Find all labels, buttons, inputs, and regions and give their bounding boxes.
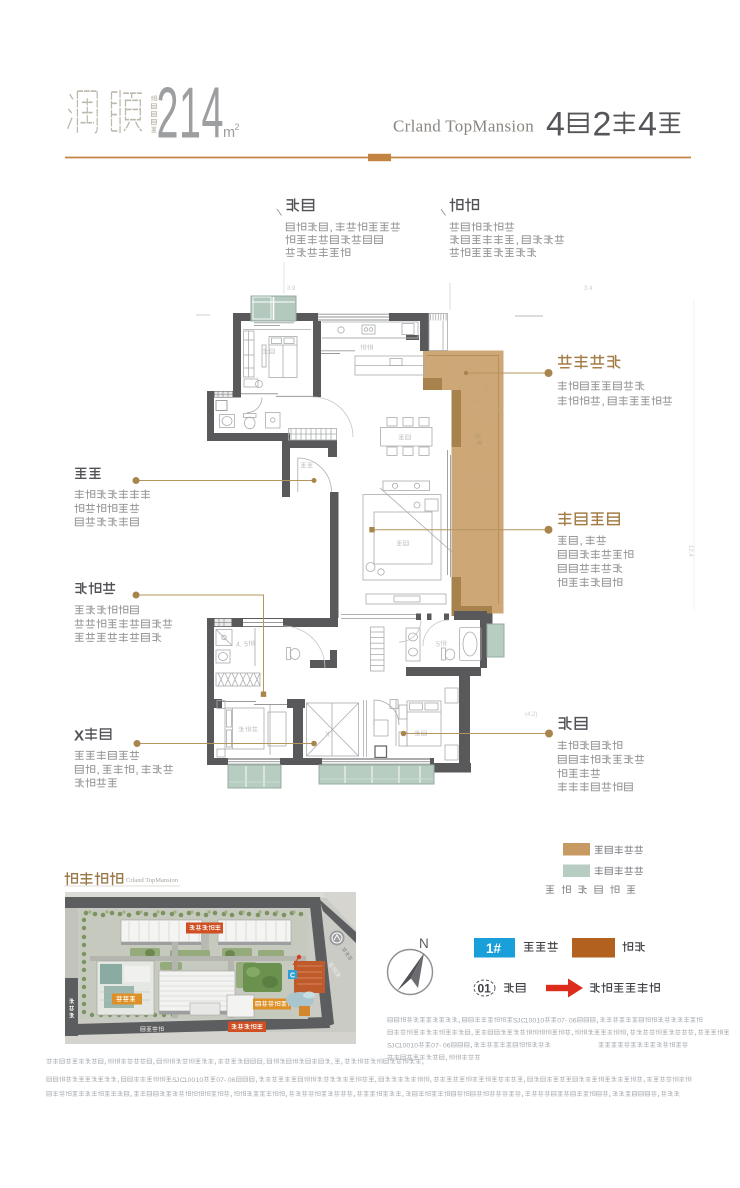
svg-text:214: 214: [157, 73, 225, 154]
svg-text:Crland TopMansion: Crland TopMansion: [393, 117, 534, 136]
svg-text:3.4: 3.4: [584, 286, 593, 292]
svg-text:12.4: 12.4: [687, 545, 693, 557]
svg-text:1#: 1#: [486, 941, 502, 956]
svg-text:X: X: [325, 731, 330, 738]
svg-text:m: m: [223, 125, 235, 141]
svg-text:4: 4: [546, 106, 565, 144]
svg-text:5: 5: [244, 641, 248, 648]
svg-text:2: 2: [593, 106, 612, 144]
svg-text:0: 0: [540, 1018, 544, 1025]
svg-text:6: 6: [232, 1077, 236, 1084]
svg-text:N: N: [419, 936, 429, 951]
svg-text:0: 0: [199, 1077, 203, 1084]
svg-text:Crland TopMansion: Crland TopMansion: [126, 877, 179, 884]
svg-text:6: 6: [573, 1018, 577, 1025]
svg-text:5: 5: [436, 641, 440, 648]
svg-text:2: 2: [235, 122, 240, 132]
svg-text:0: 0: [414, 1043, 418, 1050]
svg-text:C: C: [290, 973, 295, 980]
svg-text:J: J: [391, 1043, 394, 1050]
svg-text:3.9: 3.9: [287, 286, 296, 292]
svg-text:.: .: [240, 641, 242, 648]
svg-text:6: 6: [447, 1043, 451, 1050]
svg-text:(4.2): (4.2): [525, 712, 537, 718]
svg-text:J: J: [517, 1018, 520, 1025]
svg-text:-: -: [565, 1018, 567, 1025]
svg-text:4: 4: [638, 106, 657, 144]
svg-text:X: X: [74, 728, 84, 745]
svg-text:J: J: [176, 1077, 179, 1084]
svg-text:-: -: [439, 1043, 441, 1050]
svg-text:01: 01: [478, 982, 492, 996]
svg-text:-: -: [224, 1077, 226, 1084]
